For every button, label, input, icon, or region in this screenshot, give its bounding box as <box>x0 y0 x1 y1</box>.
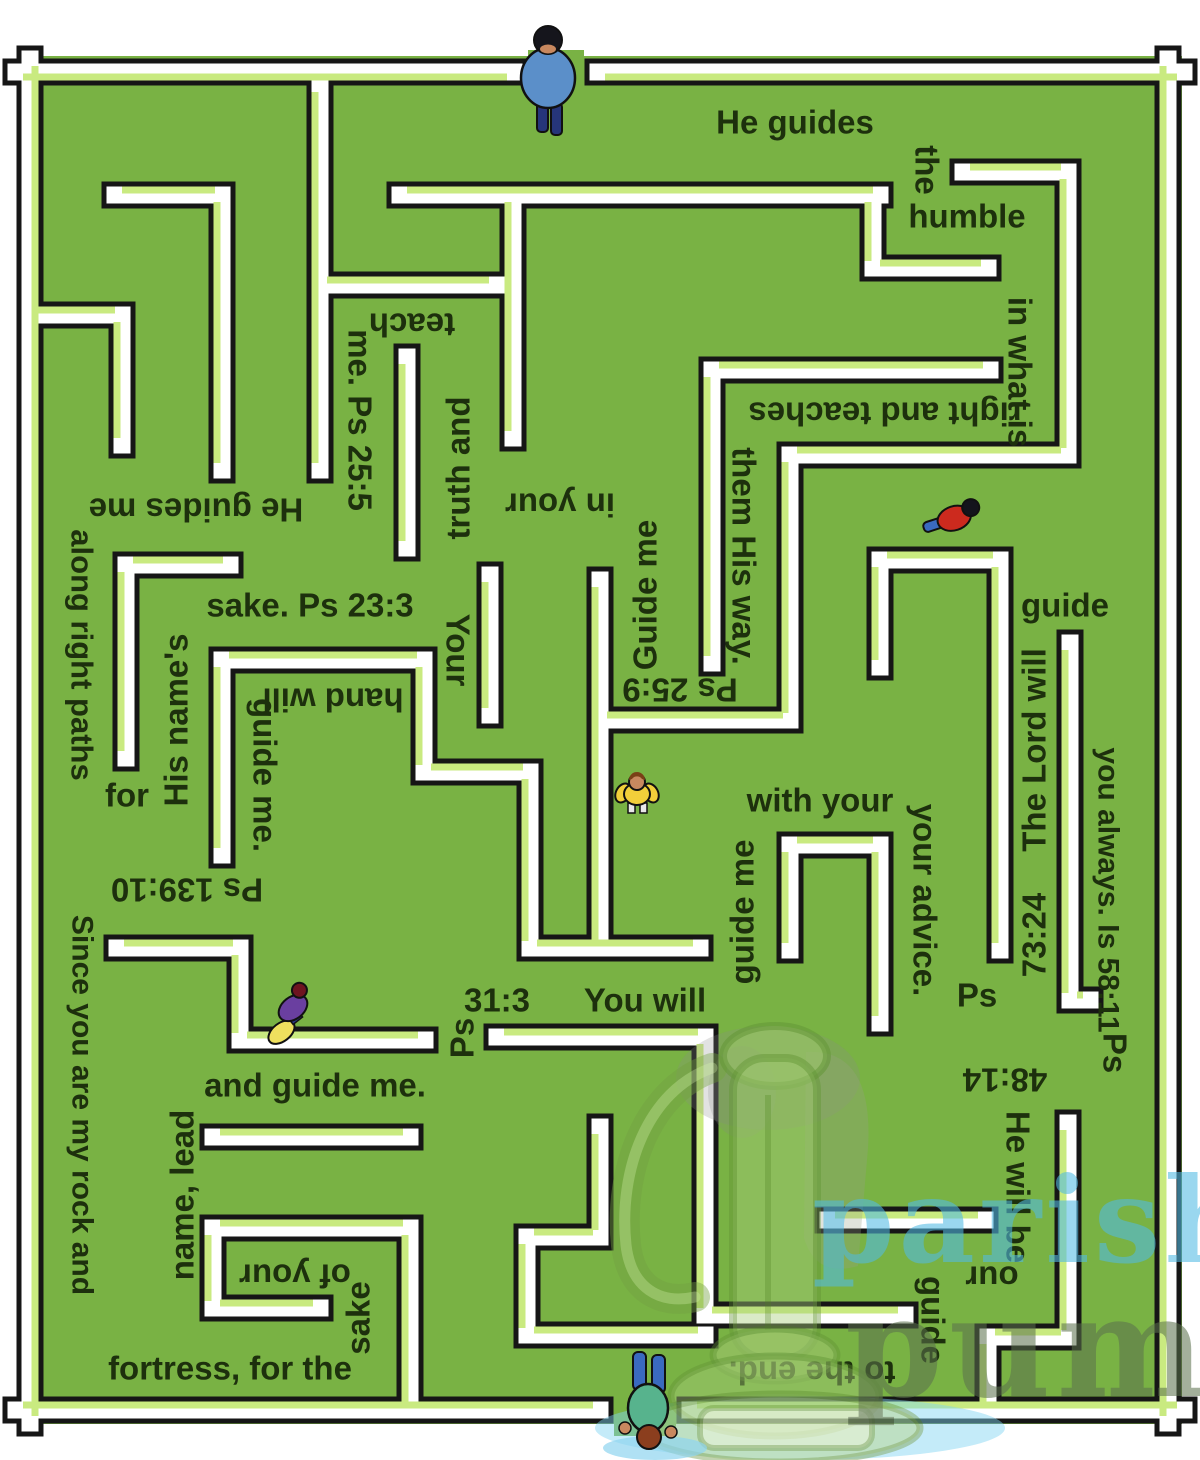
maze-label: guide me. <box>247 698 284 852</box>
maze-label: and guide me. <box>204 1067 426 1104</box>
maze-label: me. Ps 25:5 <box>342 329 379 511</box>
maze-label: along right paths <box>65 529 100 780</box>
maze-label: Ps <box>1097 1033 1134 1073</box>
maze-label: Ps 139:10 <box>111 872 263 909</box>
maze-label: Your <box>440 614 477 687</box>
maze-label: 73:24 <box>1016 892 1053 977</box>
pump-body <box>733 1058 817 1358</box>
maze-label: You will <box>584 982 706 1019</box>
maze-label: guide <box>1021 587 1109 624</box>
maze-canvas: He guidesthehumblein what isright and te… <box>0 0 1200 1460</box>
maze-label: your advice. <box>907 804 944 997</box>
maze-label: Ps 25:9 <box>622 672 738 709</box>
maze-label: truth and <box>440 397 477 540</box>
maze-label: with your <box>746 782 894 819</box>
maze-label: Guide me <box>627 520 664 670</box>
maze-label: for <box>105 777 149 814</box>
maze-label: sake. Ps 23:3 <box>206 587 413 624</box>
maze-label: humble <box>908 198 1025 235</box>
maze-label: fortress, for the <box>108 1350 352 1387</box>
maze-label: teach <box>369 307 455 344</box>
maze-label: of your <box>239 1258 351 1295</box>
maze-label: The Lord will <box>1016 648 1053 852</box>
maze-label: guide me <box>724 840 761 985</box>
maze-label: name, lead <box>164 1110 201 1281</box>
maze-label: 48:14 <box>962 1062 1047 1099</box>
maze-label: you always. Is 58:11 <box>1092 747 1125 1032</box>
maze-label: Since you are my rock and <box>66 915 99 1295</box>
watermark-word-pump: pump <box>845 1266 1200 1430</box>
maze-label: 31:3 <box>464 982 530 1019</box>
maze-label: them His way. <box>726 447 763 665</box>
maze-puzzle: He guidesthehumblein what isright and te… <box>0 0 1200 1460</box>
maze-label: in your <box>505 487 615 524</box>
maze-label: right and teaches <box>748 396 1021 433</box>
maze-label: Ps <box>444 1018 481 1058</box>
maze-label: Ps <box>957 977 997 1014</box>
maze-label: He guides <box>716 104 874 141</box>
maze-label: His name's <box>158 634 195 807</box>
maze-label: He guides me <box>89 492 304 529</box>
maze-label: the <box>909 145 946 195</box>
